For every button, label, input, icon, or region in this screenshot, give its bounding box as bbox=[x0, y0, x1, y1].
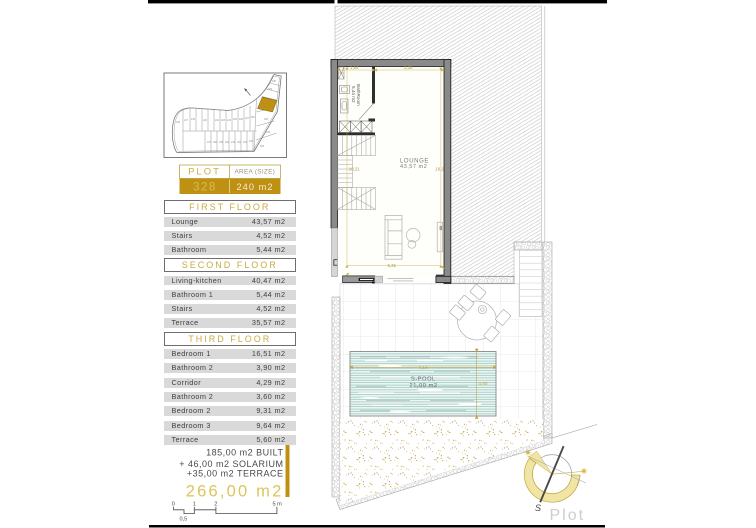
svg-text:240 m2: 240 m2 bbox=[236, 182, 273, 192]
svg-text:241: 241 bbox=[231, 141, 236, 144]
svg-text:21,00 m2: 21,00 m2 bbox=[410, 383, 438, 389]
svg-text:43,57 m2: 43,57 m2 bbox=[400, 164, 427, 170]
svg-text:327: 327 bbox=[262, 105, 267, 108]
svg-text:328: 328 bbox=[193, 182, 217, 194]
svg-text:224: 224 bbox=[227, 119, 232, 122]
svg-text:228: 228 bbox=[251, 116, 256, 119]
svg-text:S-POOL: S-POOL bbox=[411, 377, 436, 383]
svg-text:325: 325 bbox=[264, 118, 269, 121]
svg-text:225: 225 bbox=[233, 118, 238, 121]
svg-text:10,21: 10,21 bbox=[349, 167, 361, 172]
svg-text:222: 222 bbox=[215, 119, 220, 122]
svg-text:227: 227 bbox=[245, 117, 250, 120]
svg-text:AREA (SIZE): AREA (SIZE) bbox=[235, 169, 276, 176]
svg-text:Plot: Plot bbox=[550, 507, 586, 524]
svg-text:4,50: 4,50 bbox=[479, 381, 488, 386]
svg-text:216: 216 bbox=[176, 121, 181, 124]
svg-text:3,38: 3,38 bbox=[404, 65, 413, 70]
svg-text:238: 238 bbox=[213, 141, 218, 144]
svg-text:5 m: 5 m bbox=[273, 501, 283, 507]
svg-text:2: 2 bbox=[214, 501, 217, 507]
svg-text:323: 323 bbox=[260, 145, 265, 148]
svg-text:223: 223 bbox=[221, 119, 226, 122]
svg-text:240: 240 bbox=[225, 141, 230, 144]
svg-text:+ 46,00 m2 SOLARIUM: + 46,00 m2 SOLARIUM bbox=[179, 459, 283, 469]
svg-text:10,2: 10,2 bbox=[435, 167, 444, 172]
svg-text:+35,00 m2 TERRACE: +35,00 m2 TERRACE bbox=[187, 468, 284, 478]
svg-text:226: 226 bbox=[239, 118, 244, 121]
svg-text:237: 237 bbox=[207, 141, 212, 144]
svg-text:0: 0 bbox=[172, 501, 175, 507]
svg-text:217: 217 bbox=[184, 119, 189, 122]
svg-text:243: 243 bbox=[243, 141, 248, 144]
svg-text:185,00 m2 BUILT: 185,00 m2 BUILT bbox=[206, 448, 283, 458]
svg-text:324: 324 bbox=[266, 131, 271, 134]
svg-text:5,31: 5,31 bbox=[388, 263, 397, 268]
svg-text:218: 218 bbox=[191, 118, 196, 121]
svg-text:329: 329 bbox=[268, 88, 273, 91]
svg-text:1: 1 bbox=[193, 501, 196, 507]
svg-text:239: 239 bbox=[219, 141, 224, 144]
svg-text:266,00 m2: 266,00 m2 bbox=[186, 483, 284, 501]
svg-text:S: S bbox=[535, 503, 541, 513]
svg-text:242: 242 bbox=[237, 141, 242, 144]
svg-text:330: 330 bbox=[272, 80, 277, 83]
svg-text:1,64: 1,64 bbox=[350, 65, 359, 70]
svg-text:PLOT: PLOT bbox=[188, 167, 221, 178]
svg-text:5,44 m2: 5,44 m2 bbox=[351, 86, 356, 103]
svg-text:7,14: 7,14 bbox=[419, 365, 428, 370]
svg-text:220: 220 bbox=[203, 119, 208, 122]
svg-text:0,5: 0,5 bbox=[180, 517, 188, 523]
svg-text:244: 244 bbox=[249, 140, 254, 143]
